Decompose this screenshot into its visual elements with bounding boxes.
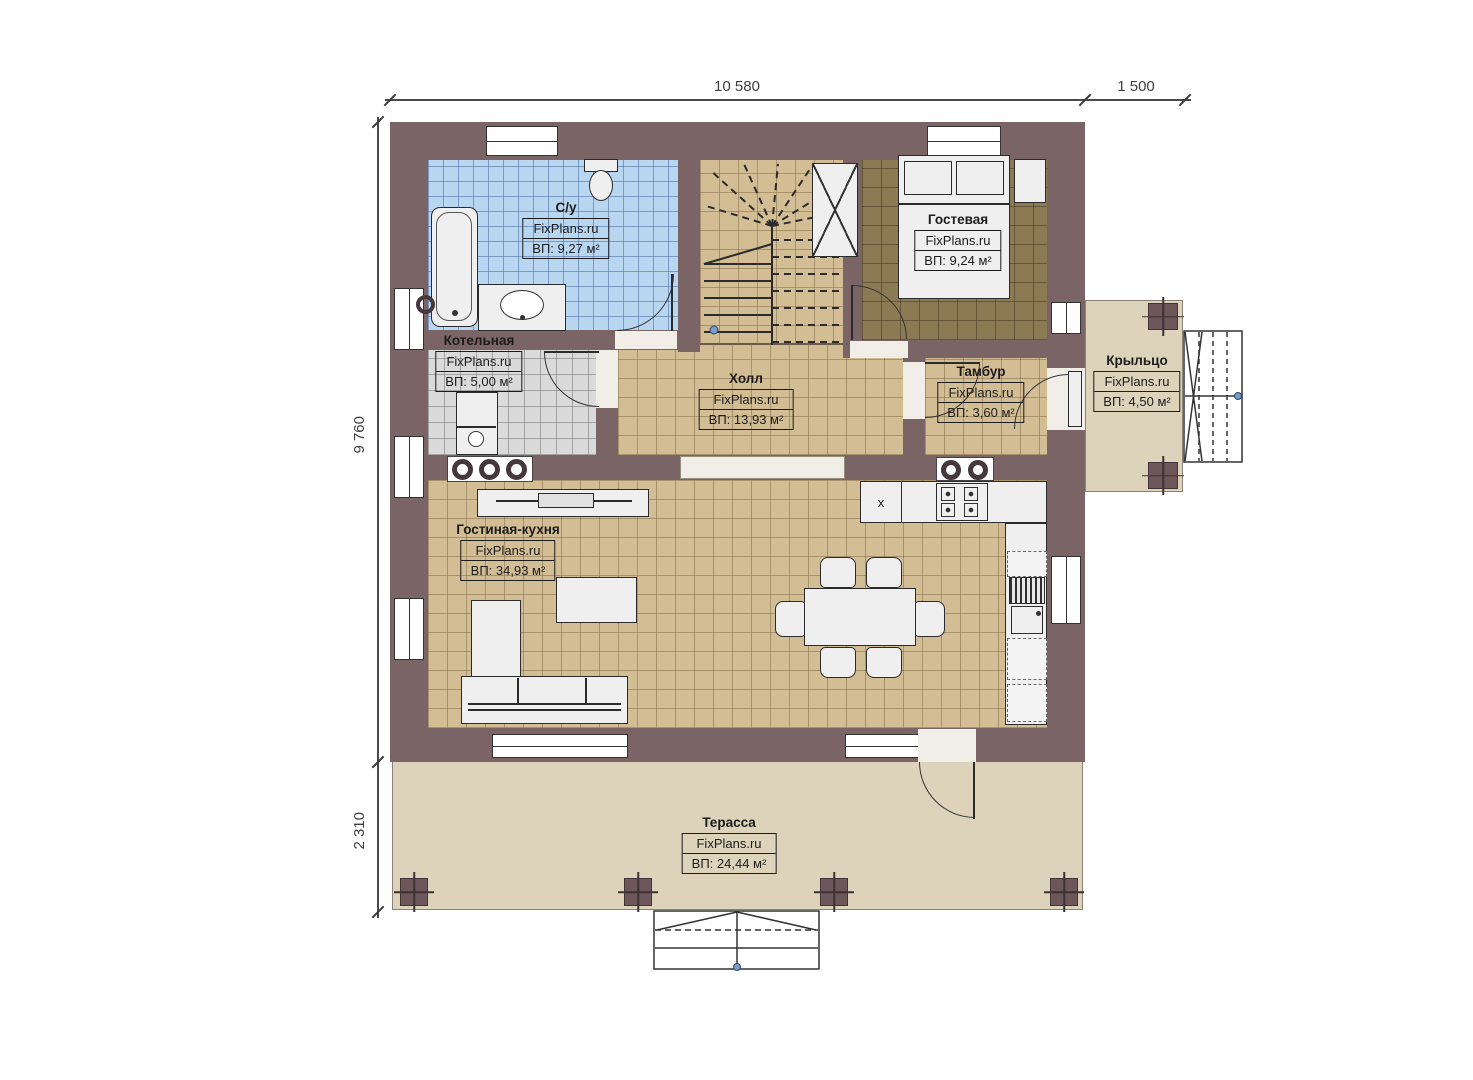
room-label-box: FixPlans.ru ВП: 3,60 м² [937,382,1024,423]
bathtub-drain [452,310,458,316]
room-area: ВП: 9,24 м² [915,251,1000,270]
room-label-box: FixPlans.ru ВП: 4,50 м² [1093,371,1180,412]
dimension-width-porch: 1 500 [1117,78,1155,95]
window-left-lower [394,598,424,660]
guest-door-leaf [851,285,853,340]
watermark: FixPlans.ru [436,352,521,372]
room-name: Котельная [435,333,522,348]
flue-ring [506,459,527,480]
room-area: ВП: 13,93 м² [700,410,793,429]
watermark: FixPlans.ru [523,219,608,239]
room-label-box: FixPlans.ru ВП: 34,93 м² [461,540,556,581]
dining-chair [866,557,902,588]
terrace-post [1050,878,1078,906]
flue-box-right [936,457,994,481]
watermark: FixPlans.ru [462,541,555,561]
room-name: Крыльцо [1093,353,1180,368]
watermark: FixPlans.ru [915,231,1000,251]
window-right-kitchen [1051,556,1081,624]
x-marker: x [878,495,885,510]
terrace-post [820,878,848,906]
terrace-stairs [653,910,821,971]
room-area: ВП: 24,44 м² [683,854,776,873]
watermark: FixPlans.ru [1094,372,1179,392]
wardrobe [812,163,858,257]
guest-door-opening [850,341,908,358]
wall-right [1047,160,1085,762]
room-name: Гостиная-кухня [456,522,559,537]
stove-burner [964,487,978,501]
sofa-cushion-line [468,703,621,705]
hall-living-opening [680,456,845,479]
room-label-boiler: Котельная FixPlans.ru ВП: 5,00 м² [435,333,522,392]
bed-blanket-line [899,203,1009,205]
room-label-box: FixPlans.ru ВП: 5,00 м² [435,351,522,392]
nightstand [1014,159,1046,203]
tambour-door-opening [903,362,925,419]
entry-door-leaf [1068,371,1082,427]
bathtub [431,207,478,327]
room-label-bathroom: С/у FixPlans.ru ВП: 9,27 м² [522,200,609,259]
bathroom-door-leaf [671,274,673,331]
floor-plan: 10 580 1 500 9 760 2 310 [0,0,1473,1080]
room-label-guest: Гостевая FixPlans.ru ВП: 9,24 м² [914,212,1001,271]
room-area: ВП: 3,60 м² [938,403,1023,422]
kitchen-cabinet-dashed [1007,638,1047,680]
stove-burner [964,503,978,517]
watermark: FixPlans.ru [700,390,793,410]
flue-ring [479,459,500,480]
dimension-line-left [377,117,379,918]
stove-burner [941,503,955,517]
sofa-cushion-divider [585,678,587,703]
boiler-door-opening [596,350,618,408]
window-bottom-kitchen [845,734,919,758]
boiler-divider [457,426,496,428]
coffee-table [556,577,637,623]
porch-post [1148,303,1178,330]
terrace-post [624,878,652,906]
watermark: FixPlans.ru [683,834,776,854]
terrace-door-opening [918,729,976,762]
dining-chair [914,601,945,637]
flue-ring [452,459,473,480]
room-label-terrace: Терасса FixPlans.ru ВП: 24,44 м² [682,815,777,874]
bed-pillow [904,161,952,195]
window-top-bathroom [486,126,558,156]
sink-faucet-dot [520,315,525,320]
window-right-upper [1051,302,1081,334]
tv-set [538,493,594,508]
porch-stairs [1183,330,1244,464]
kitchen-sink-faucet [1036,611,1041,616]
bed-pillow [956,161,1004,195]
kitchen-cabinet-dashed [1007,684,1047,722]
boiler-burner-circle [468,431,484,447]
dining-chair [820,557,856,588]
sofa-chaise [471,600,521,677]
toilet-bowl [589,170,613,201]
terrace-post [400,878,428,906]
dining-chair [820,647,856,678]
room-label-box: FixPlans.ru ВП: 9,27 м² [522,218,609,259]
dimension-width-main: 10 580 [714,78,760,95]
sofa-body [461,676,628,724]
room-label-tambour: Тамбур FixPlans.ru ВП: 3,60 м² [937,364,1024,423]
dimension-line-top [385,99,1191,101]
room-name: Холл [699,371,794,386]
bathtub-inner [436,212,472,321]
room-name: С/у [522,200,609,215]
kitchen-sink-drainer [1009,577,1045,604]
flue-ring [941,460,961,480]
dining-table [804,588,916,646]
room-name: Тамбур [937,364,1024,379]
wall-bath-stairs [678,160,700,352]
dining-chair [775,601,806,637]
boiler-unit [456,392,498,455]
watermark: FixPlans.ru [938,383,1023,403]
room-area: ВП: 4,50 м² [1094,392,1179,411]
stove [936,483,988,521]
bathroom-door-opening [615,331,677,349]
room-area: ВП: 9,27 м² [523,239,608,258]
room-label-porch: Крыльцо FixPlans.ru ВП: 4,50 м² [1093,353,1180,412]
boiler-door-leaf [544,351,599,353]
room-label-living: Гостиная-кухня FixPlans.ru ВП: 34,93 м² [456,522,559,581]
room-area: ВП: 34,93 м² [462,561,555,580]
room-name: Терасса [682,815,777,830]
room-label-box: FixPlans.ru ВП: 13,93 м² [699,389,794,430]
window-bottom-living [492,734,628,758]
kitchen-cabinet-dashed [1007,551,1047,577]
room-area: ВП: 5,00 м² [436,372,521,391]
room-label-box: FixPlans.ru ВП: 9,24 м² [914,230,1001,271]
dining-chair [866,647,902,678]
room-label-hall: Холл FixPlans.ru ВП: 13,93 м² [699,371,794,430]
dimension-height-terrace: 2 310 [351,812,368,850]
porch-post [1148,462,1178,489]
flue-box-left [447,456,533,482]
flue-ring [968,460,988,480]
window-left-middle [394,436,424,498]
window-top-guest [927,126,1001,156]
room-label-box: FixPlans.ru ВП: 24,44 м² [682,833,777,874]
dimension-height-main: 9 760 [351,416,368,454]
floor-drain-ring [416,295,435,314]
kitchen-appliance-x: x [860,481,902,523]
stove-burner [941,487,955,501]
sofa-cushion-line [468,709,621,711]
terrace-door-leaf [973,762,975,819]
room-name: Гостевая [914,212,1001,227]
sofa-cushion-divider [517,678,519,703]
